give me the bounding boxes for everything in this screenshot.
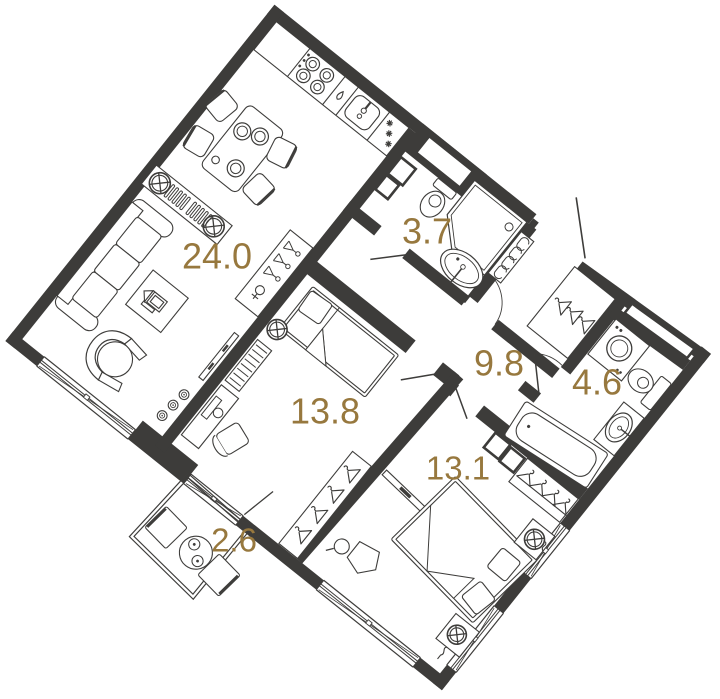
svg-text:13.1: 13.1: [426, 450, 490, 487]
svg-text:24.0: 24.0: [182, 236, 252, 277]
svg-text:13.8: 13.8: [290, 391, 360, 432]
svg-text:2.6: 2.6: [211, 522, 257, 559]
svg-text:9.8: 9.8: [474, 343, 524, 384]
svg-text:4.6: 4.6: [572, 362, 622, 403]
svg-text:3.7: 3.7: [402, 211, 452, 252]
